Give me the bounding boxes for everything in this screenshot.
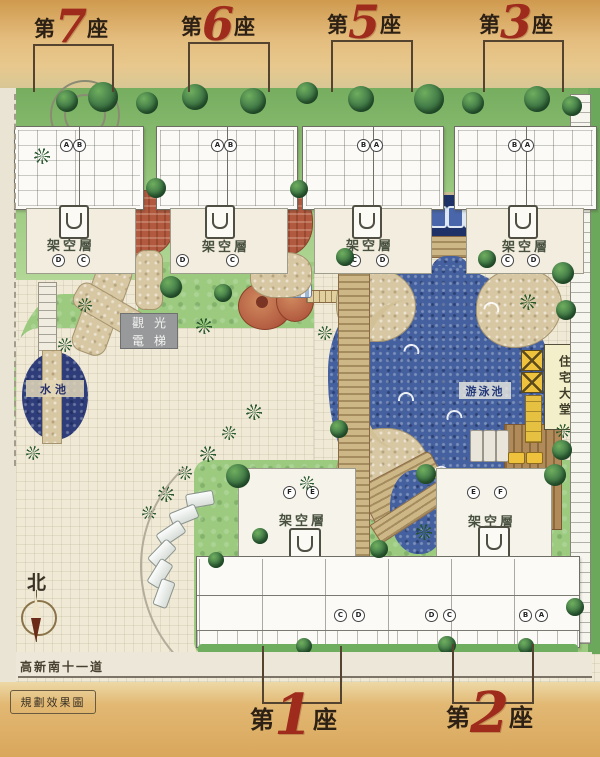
block-suffix: 座 <box>87 19 108 40</box>
tree-icon <box>544 464 566 486</box>
unit-letter-circle: B <box>508 139 521 152</box>
tree-icon <box>296 82 318 104</box>
block-number: 3 <box>500 3 532 42</box>
caption-box: 規劃效果圖 <box>10 690 96 714</box>
tree-icon <box>290 180 308 198</box>
tree-icon <box>336 248 354 266</box>
unit-letter-circle: A <box>535 609 548 622</box>
palm-icon <box>26 446 40 460</box>
palm-icon <box>556 424 570 438</box>
stilt-floor-label: 架空層 <box>186 236 266 255</box>
unit-letter-circle: B <box>357 139 370 152</box>
block-bracket <box>331 40 413 92</box>
fountain-swirl <box>398 392 414 401</box>
tree-icon <box>462 92 484 114</box>
unit-letter-circle: D <box>176 254 189 267</box>
block-number: 7 <box>55 7 87 46</box>
tree-icon <box>414 84 444 114</box>
block-prefix: 第 <box>250 708 274 732</box>
block-suffix: 座 <box>313 708 337 732</box>
pond-label-strip: 水池 <box>26 380 84 397</box>
site-boundary-dashed <box>14 94 16 466</box>
tree-icon <box>160 276 182 298</box>
tree-icon <box>214 284 232 302</box>
block-prefix: 第 <box>446 706 470 730</box>
stilt-floor-label: 架空層 <box>263 510 343 529</box>
tree-icon <box>478 250 496 268</box>
block-prefix: 第 <box>479 15 500 36</box>
palm-icon <box>200 446 216 462</box>
palm-icon <box>222 426 236 440</box>
unit-letter-circle: A <box>60 139 73 152</box>
trellis-steps <box>38 282 57 360</box>
unit-letter-circle: D <box>352 609 365 622</box>
pergola-path <box>135 250 163 310</box>
unit-letter-circle: D <box>527 254 540 267</box>
block-number: 5 <box>348 3 380 42</box>
yellow-lounger <box>526 452 543 464</box>
block-suffix: 座 <box>532 15 553 36</box>
unit-letter-circle: B <box>519 609 532 622</box>
block-bracket <box>33 44 114 92</box>
tree-icon <box>552 262 574 284</box>
elevator-shaft-icon <box>521 372 543 393</box>
unit-letter-circle: C <box>226 254 239 267</box>
unit-letter-circle: A <box>521 139 534 152</box>
tree-icon <box>370 540 388 558</box>
tree-icon <box>330 420 348 438</box>
palm-icon <box>520 294 536 310</box>
unit-letter-circle: A <box>211 139 224 152</box>
block-suffix: 座 <box>509 706 533 730</box>
palm-icon <box>58 338 72 352</box>
block-label-2: 第 2 座 <box>446 694 533 742</box>
tree-icon <box>416 464 436 484</box>
yellow-lounger <box>508 452 525 464</box>
palm-icon <box>300 476 314 490</box>
tree-icon <box>562 96 582 116</box>
unit-letter-circle: F <box>283 486 296 499</box>
site-plan: 水池 游泳池 住宅大堂 <box>0 0 600 757</box>
block-prefix: 第 <box>181 17 202 38</box>
tree-icon <box>566 598 584 616</box>
compass-needle-south <box>31 618 41 642</box>
unit-letter-circle: C <box>501 254 514 267</box>
palm-icon <box>246 404 262 420</box>
compass-needle-north <box>31 596 41 618</box>
tree-icon <box>56 90 78 112</box>
unit-letter-circle: C <box>443 609 456 622</box>
unit-letter-circle: D <box>376 254 389 267</box>
elevator-shaft-icon <box>521 350 543 371</box>
block-bracket <box>483 40 564 92</box>
stilt-floor-label: 架空層 <box>486 236 566 255</box>
block-prefix: 第 <box>34 19 55 40</box>
block-label-1: 第 1 座 <box>250 696 337 744</box>
swimming-pool-label: 游泳池 <box>466 383 505 399</box>
unit-letter-circle: C <box>77 254 90 267</box>
pond-label: 水池 <box>40 381 70 397</box>
pillar-motif <box>59 205 89 239</box>
tree-icon <box>556 300 576 320</box>
tree-icon <box>146 178 166 198</box>
block-number: 2 <box>470 690 509 738</box>
unit-letter-circle: D <box>52 254 65 267</box>
unit-letter-circle: C <box>334 609 347 622</box>
sightseeing-elevator-box: 觀光 電梯 <box>120 313 178 349</box>
palm-icon <box>34 148 50 164</box>
elevator-label-line1: 觀光 <box>122 314 176 331</box>
road-name-label: 高新南十一道 <box>20 658 104 675</box>
tree-icon <box>136 92 158 114</box>
lounger <box>470 430 483 462</box>
palm-icon <box>78 298 92 312</box>
unit-letter-circle: A <box>370 139 383 152</box>
block-suffix: 座 <box>234 17 255 38</box>
unit-letter-circle: B <box>224 139 237 152</box>
unit-letter-circle: F <box>494 486 507 499</box>
pool-label-box: 游泳池 <box>459 382 511 399</box>
lounger <box>483 430 496 462</box>
elevator-label-line2: 電梯 <box>122 332 176 349</box>
caption-label: 規劃效果圖 <box>21 694 86 710</box>
guitar-sound-hole <box>256 296 268 308</box>
pillar-motif <box>352 205 382 239</box>
block-number: 1 <box>274 692 313 740</box>
block-prefix: 第 <box>327 15 348 36</box>
unit-letter-circle: B <box>73 139 86 152</box>
block-number: 6 <box>202 5 234 44</box>
pond-stone-path <box>42 350 62 444</box>
palm-icon <box>416 524 432 540</box>
stilt-floor-label: 架空層 <box>31 235 111 254</box>
tree-icon <box>552 440 572 460</box>
block-suffix: 座 <box>380 15 401 36</box>
block-bracket <box>188 42 270 92</box>
palm-icon <box>318 326 332 340</box>
palm-icon <box>196 318 212 334</box>
pillar-motif <box>205 205 235 239</box>
unit-letter-circle: E <box>467 486 480 499</box>
unit-letter-circle: D <box>425 609 438 622</box>
elevator-bar <box>525 395 542 443</box>
pillar-motif <box>508 205 538 239</box>
